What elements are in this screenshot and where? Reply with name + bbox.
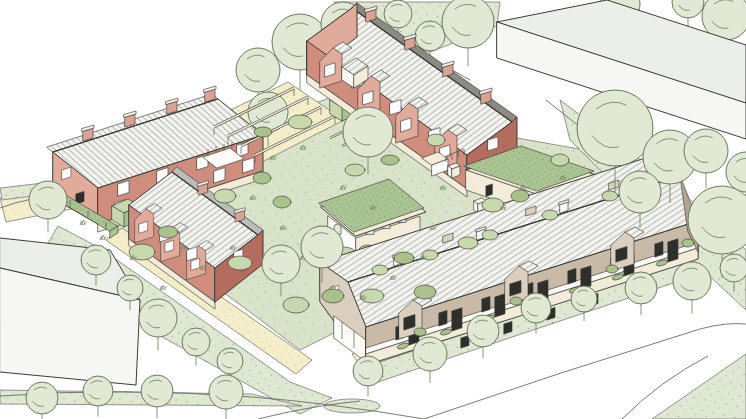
corner-green [652,354,746,419]
site-plan-illustration [0,0,746,419]
axonometric-drawing [0,0,746,419]
neighbouring-building-west [0,238,140,385]
